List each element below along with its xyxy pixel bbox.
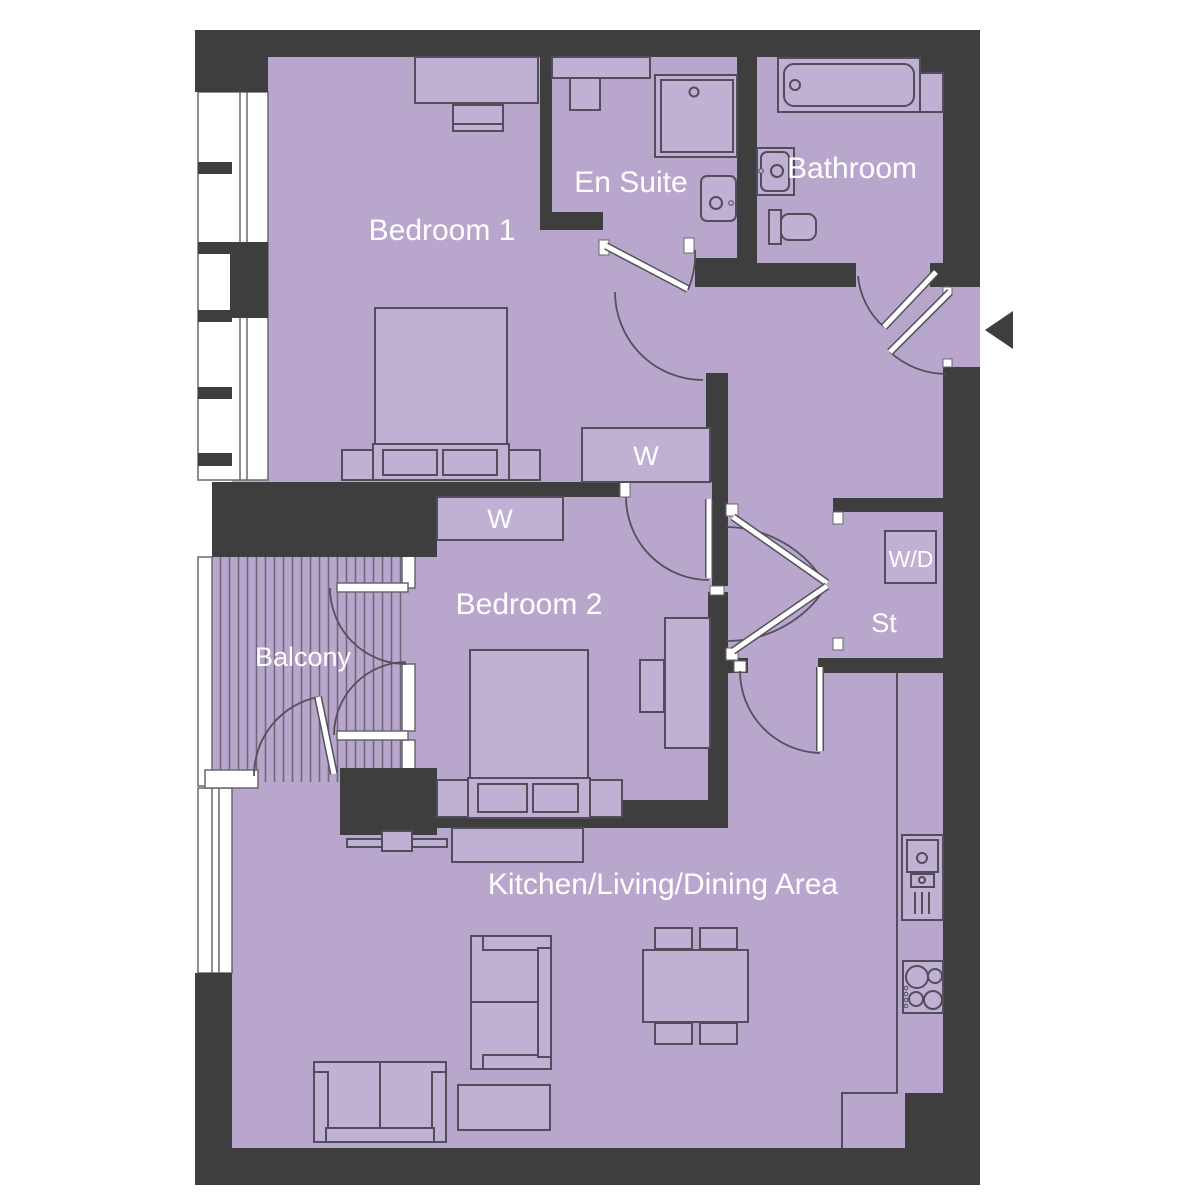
wall-balcony-bottom-block <box>340 768 437 835</box>
wall-mullion-4 <box>198 387 232 399</box>
wall-mullion-2 <box>198 242 232 254</box>
wall-mullion-5 <box>198 453 232 466</box>
wall-bath-notch <box>920 57 943 73</box>
wall-mullion-3 <box>198 310 232 322</box>
sofa-1 <box>471 936 551 1069</box>
balcony-threshold <box>205 770 258 788</box>
wall-balcony-top <box>212 482 437 557</box>
dining-chair <box>655 1023 692 1044</box>
dining-chair <box>700 928 737 949</box>
kitchen-hob <box>903 961 943 1013</box>
balcony-door2-leaf <box>337 731 408 740</box>
wall-bed2-right-upper <box>712 482 728 586</box>
wall-mullion-1 <box>198 162 232 174</box>
coffee-table <box>458 1085 550 1130</box>
wall-window-pier <box>230 242 268 318</box>
bedroom1-nightstand-left <box>342 450 373 480</box>
entry-arrow-icon <box>985 311 1013 349</box>
wall-bottom <box>230 1148 980 1185</box>
kitchen-sink <box>902 835 943 920</box>
wall-bathroom-bottom <box>757 263 856 287</box>
wall-right-lower <box>943 367 980 1185</box>
bathroom-toilet <box>769 210 816 244</box>
balcony-railing <box>198 557 212 786</box>
ensuite-shower <box>655 75 737 157</box>
wall-bed-partition <box>437 482 630 497</box>
kitchen-living-dining-label: Kitchen/Living/Dining Area <box>488 868 839 901</box>
sofa-2 <box>314 1062 446 1142</box>
wall-ensuite-bathroom <box>737 57 757 287</box>
wall-ensuite-left <box>540 57 552 215</box>
dining-chair <box>655 928 692 949</box>
wall-top <box>195 30 980 57</box>
ensuite-sink <box>701 176 736 221</box>
wall-storage-top <box>833 498 943 512</box>
bedroom1-nightstand-right <box>509 450 540 480</box>
washer-dryer-label: W/D <box>889 546 934 572</box>
dining-table <box>643 950 748 1022</box>
wall-bottomleft-corner <box>195 973 232 1185</box>
wall-ensuite-bottomleft <box>540 212 603 230</box>
wardrobe2-label: W <box>487 504 513 534</box>
wall-bottomright-notch <box>905 1093 943 1148</box>
storage-label: St <box>871 608 897 638</box>
balcony-door1-leaf <box>337 583 408 592</box>
bedroom1-label: Bedroom 1 <box>369 214 516 247</box>
bathroom-bathtub <box>778 58 943 112</box>
wall-storage-bottom <box>833 658 943 673</box>
wall-topleft-corner <box>195 30 268 92</box>
bedroom2-nightstand-left <box>437 780 468 817</box>
ensuite-label: En Suite <box>574 166 687 199</box>
bathroom-label: Bathroom <box>787 152 917 185</box>
wall-right-upper <box>943 57 980 287</box>
balcony-label: Balcony <box>255 642 352 672</box>
floorplan-canvas: Bedroom 1 En Suite Bathroom W W W/D St B… <box>0 0 1200 1200</box>
dining-chair <box>700 1023 737 1044</box>
bedroom2-nightstand-right <box>590 780 622 817</box>
wardrobe1-label: W <box>633 441 659 471</box>
bedroom2-label: Bedroom 2 <box>456 588 603 621</box>
window-band-lower <box>198 788 232 973</box>
floorplan-page: Bedroom 1 En Suite Bathroom W W W/D St B… <box>0 0 1200 1200</box>
wall-hall-corner <box>695 258 757 287</box>
